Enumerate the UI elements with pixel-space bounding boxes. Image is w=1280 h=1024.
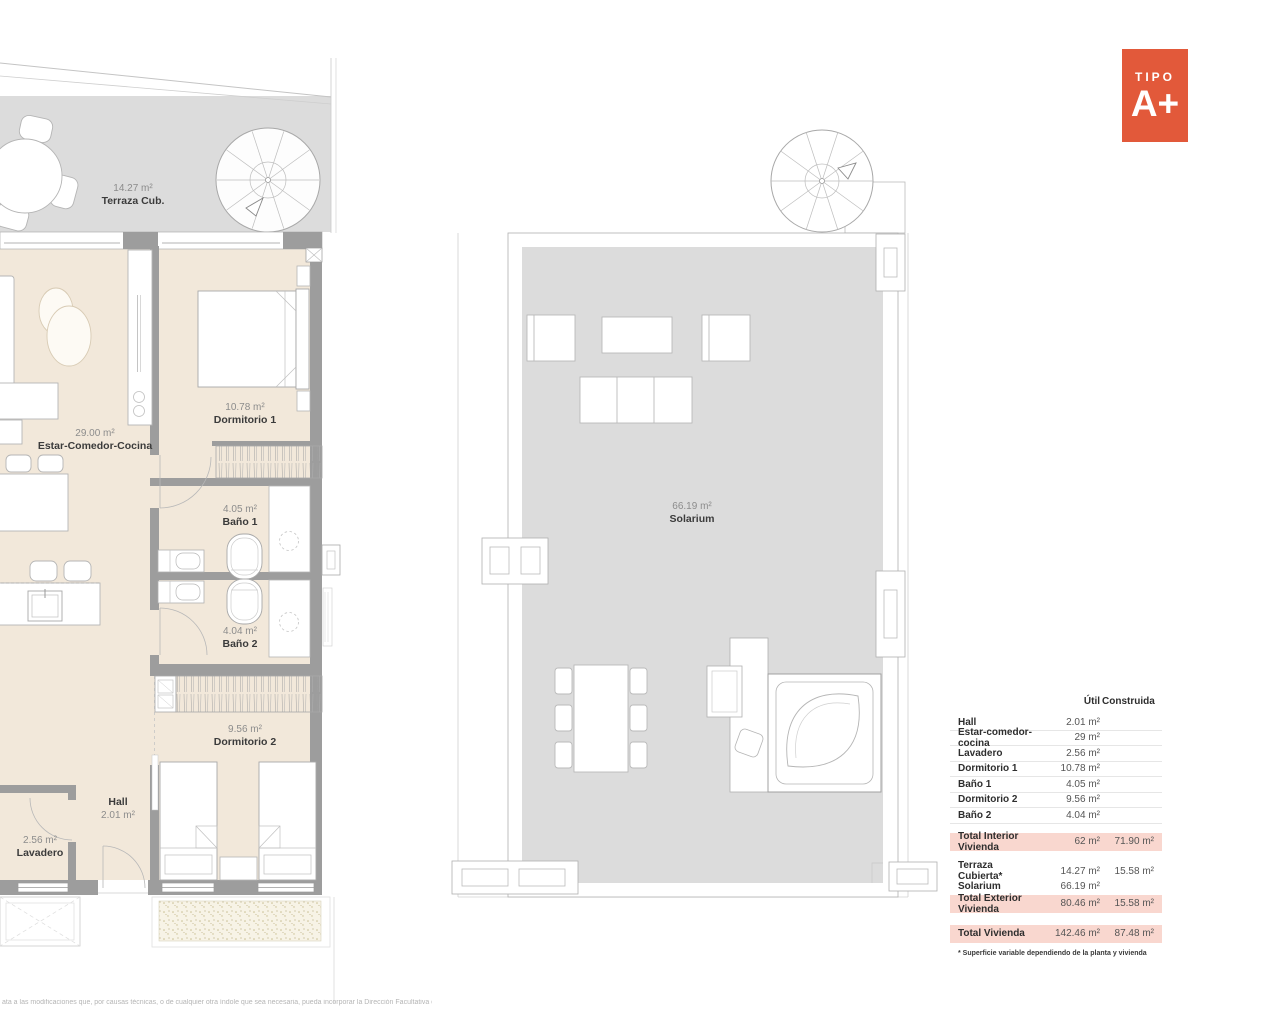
table-row: Terraza Cubierta* 14.27 m² 15.58 m²: [950, 864, 1162, 880]
room-name: Dormitorio 2: [214, 736, 276, 749]
room-label-bano1: 4.05 m² Baño 1: [222, 503, 257, 529]
room-name: Terraza Cub.: [102, 195, 165, 208]
room-name: Dormitorio 1: [214, 414, 276, 427]
badge-value: A+: [1131, 86, 1179, 122]
room-label-terraza: 14.27 m² Terraza Cub.: [102, 182, 165, 208]
room-name: Estar-Comedor-Cocina: [38, 440, 152, 453]
room-area: 9.56 m²: [214, 723, 276, 736]
terrace-spiral-stair: [216, 128, 320, 232]
table-row: Lavadero 2.56 m²: [950, 746, 1162, 762]
room-area: 29.00 m²: [38, 427, 152, 440]
room-area: 10.78 m²: [214, 401, 276, 414]
room-name: Solarium: [670, 513, 715, 526]
total-vivienda-row: Total Vivienda 142.46 m² 87.48 m²: [950, 925, 1162, 943]
room-label-lavadero: 2.56 m² Lavadero: [17, 834, 64, 860]
solarium-spiral-stair: [771, 130, 873, 232]
room-label-dormitorio2: 9.56 m² Dormitorio 2: [214, 723, 276, 749]
room-area: 4.05 m²: [222, 503, 257, 516]
room-name: Baño 1: [222, 516, 257, 529]
kitchen-tall-unit: [128, 250, 152, 425]
room-area: 2.01 m²: [101, 809, 135, 822]
header-util: Útil: [1036, 696, 1100, 707]
room-name: Baño 2: [222, 638, 257, 651]
lower-terrace: [0, 897, 80, 946]
table-row: Baño 2 4.04 m²: [950, 808, 1162, 824]
room-label-estar: 29.00 m² Estar-Comedor-Cocina: [38, 427, 152, 453]
bedroom1-wardrobe: [212, 441, 322, 478]
gravel-bed: [152, 897, 334, 1003]
room-area: 66.19 m²: [670, 500, 715, 513]
room-area: 4.04 m²: [222, 625, 257, 638]
room-area: 14.27 m²: [102, 182, 165, 195]
table-row: Dormitorio 2 9.56 m²: [950, 793, 1162, 809]
room-label-bano2: 4.04 m² Baño 2: [222, 625, 257, 651]
table-row: Estar-comedor-cocina 29 m²: [950, 731, 1162, 747]
right-facade-details: [322, 545, 340, 646]
room-name: Lavadero: [17, 847, 64, 860]
room-label-dormitorio1: 10.78 m² Dormitorio 1: [214, 401, 276, 427]
table-footnote: * Superficie variable dependiendo de la …: [950, 950, 1162, 957]
kitchen-counter: [0, 583, 100, 625]
total-exterior-row: Total Exterior Vivienda 80.46 m² 15.58 m…: [950, 895, 1162, 913]
room-label-solarium: 66.19 m² Solarium: [670, 500, 715, 526]
floorplan-page: 14.27 m² Terraza Cub. 29.00 m² Estar-Com…: [0, 0, 1280, 1024]
table-row: Baño 1 4.05 m²: [950, 777, 1162, 793]
areas-table: Útil Construida Hall 2.01 m² Estar-comed…: [950, 692, 1162, 957]
disclaimer-text: ata a las modificaciones que, por causas…: [2, 999, 432, 1006]
solarium-dining-set: [555, 665, 647, 772]
shaft-marker: [306, 248, 322, 262]
total-interior-row: Total Interior Vivienda 62 m² 71.90 m²: [950, 833, 1162, 851]
header-construida: Construida: [1102, 696, 1154, 707]
facade-window-band: [0, 232, 322, 249]
room-area: 2.56 m²: [17, 834, 64, 847]
table-row: Dormitorio 1 10.78 m²: [950, 762, 1162, 778]
unit-type-badge: TIPO A+: [1122, 49, 1188, 142]
room-name: Hall: [101, 796, 135, 809]
areas-table-header: Útil Construida: [950, 692, 1162, 710]
badge-label: TIPO: [1135, 70, 1175, 84]
room-label-hall: Hall 2.01 m²: [101, 796, 135, 822]
bedroom2-wardrobe: [155, 676, 322, 712]
